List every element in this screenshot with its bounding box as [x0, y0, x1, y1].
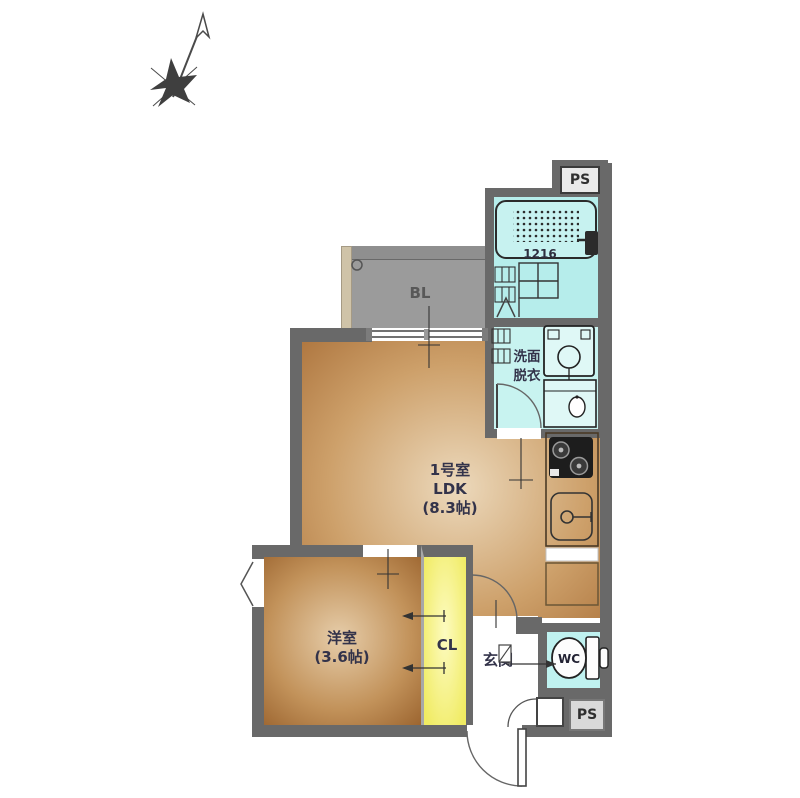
- compass-north-icon: [150, 14, 209, 107]
- entry-doorway-gap: [467, 725, 522, 737]
- stove-icon: [549, 437, 593, 478]
- washroom-doorway-gap: [497, 428, 541, 439]
- washroom-door-arc: [497, 384, 541, 428]
- bath-counter-icon: [519, 263, 558, 298]
- vanity-sink-icon: [544, 380, 596, 427]
- kitchen-sink-icon: [551, 493, 592, 540]
- washroom-shelf-icons: [492, 329, 510, 363]
- floorplan-canvas: PS PS BL 1号室 LDK (8.3帖) 洋室 (3.6帖) CL 玄関 …: [0, 0, 800, 798]
- washing-machine-icon: [544, 326, 594, 381]
- kitchen-counter-end: [546, 548, 598, 561]
- refrigerator-space: [546, 563, 598, 605]
- storage-door-arc: [508, 699, 536, 727]
- bath-shelf-icons: [495, 267, 515, 302]
- toilet-label: WC: [558, 652, 580, 666]
- entry-door-arc: [467, 729, 526, 786]
- bathtub-size-label: 1216: [523, 247, 556, 261]
- toilet-door-slide-arrow: [499, 645, 556, 668]
- western-room-window-gap: [252, 559, 264, 607]
- balcony-window: [366, 328, 488, 341]
- floorplan-annotations: 1216: [0, 0, 800, 798]
- western-room-window-icon: [241, 562, 253, 606]
- bath-folding-door-icon: [497, 298, 519, 317]
- closet-slide-arrows: [402, 610, 446, 674]
- balcony-drain-icon: [352, 260, 362, 270]
- hall-door-arc: [472, 575, 517, 628]
- western-room-doorway-gap: [363, 545, 417, 557]
